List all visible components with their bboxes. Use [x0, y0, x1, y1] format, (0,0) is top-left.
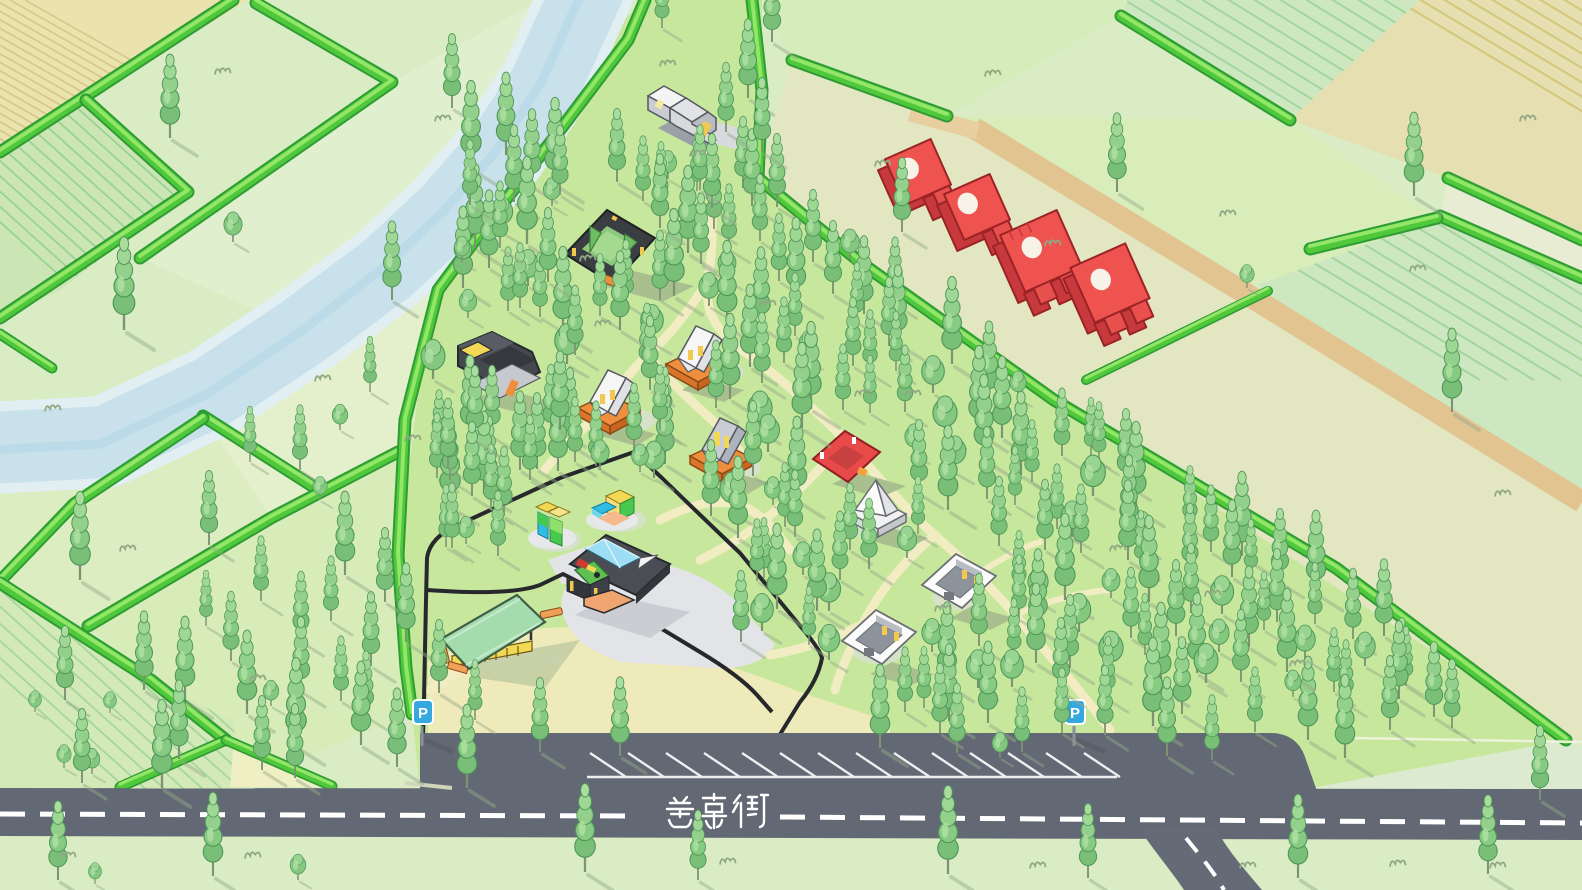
svg-text:P: P	[418, 705, 428, 722]
svg-text:P: P	[1070, 705, 1080, 722]
